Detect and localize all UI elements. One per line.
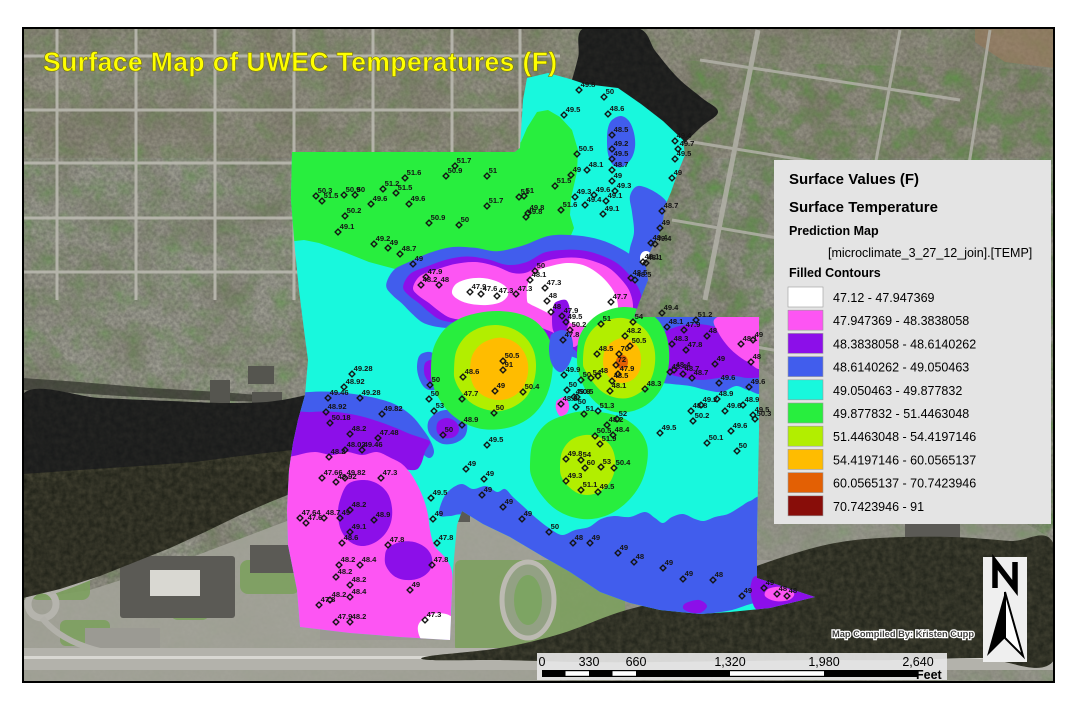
svg-text:49: 49: [497, 381, 505, 390]
svg-text:49.5: 49.5: [566, 105, 582, 114]
svg-text:49: 49: [620, 543, 628, 552]
svg-text:50.5: 50.5: [579, 144, 595, 153]
svg-text:50.5: 50.5: [579, 387, 595, 396]
svg-text:48.4: 48.4: [676, 360, 692, 369]
svg-text:48.2: 48.2: [352, 575, 367, 584]
svg-text:50: 50: [551, 522, 559, 531]
svg-text:60.0565137 - 70.7423946: 60.0565137 - 70.7423946: [833, 477, 976, 491]
svg-text:49: 49: [592, 533, 600, 542]
svg-text:Surface Temperature: Surface Temperature: [789, 199, 938, 216]
svg-text:660: 660: [626, 655, 647, 669]
svg-text:49: 49: [766, 578, 774, 587]
svg-text:48.1: 48.1: [645, 252, 661, 261]
svg-text:51: 51: [521, 187, 530, 196]
svg-text:50: 50: [606, 87, 614, 96]
svg-text:48.7: 48.7: [694, 368, 709, 377]
svg-text:48.3838058 - 48.6140262: 48.3838058 - 48.6140262: [833, 337, 976, 351]
svg-text:48.9: 48.9: [376, 510, 391, 519]
svg-text:48: 48: [600, 366, 608, 375]
svg-text:48.1: 48.1: [669, 317, 685, 326]
svg-text:48.8: 48.8: [693, 401, 708, 410]
svg-text:48.4: 48.4: [615, 425, 631, 434]
svg-text:49: 49: [685, 569, 693, 578]
svg-text:54: 54: [635, 312, 644, 321]
svg-text:48.5: 48.5: [599, 344, 615, 353]
svg-text:91: 91: [505, 360, 514, 369]
svg-text:72: 72: [618, 355, 626, 364]
svg-text:47.3: 47.3: [427, 610, 442, 619]
svg-text:48: 48: [636, 552, 644, 561]
svg-text:48.2: 48.2: [627, 326, 642, 335]
svg-text:330: 330: [579, 655, 600, 669]
svg-text:49: 49: [744, 586, 752, 595]
svg-text:49: 49: [573, 165, 581, 174]
svg-text:49: 49: [614, 171, 622, 180]
svg-text:48.9: 48.9: [745, 395, 760, 404]
svg-text:51.5: 51.5: [324, 191, 340, 200]
svg-text:49.3: 49.3: [617, 181, 632, 190]
svg-text:47.12 - 47.947369: 47.12 - 47.947369: [833, 291, 935, 305]
svg-text:49: 49: [486, 469, 494, 478]
svg-text:49.28: 49.28: [354, 364, 373, 373]
svg-text:48.7: 48.7: [664, 201, 679, 210]
svg-text:49.6: 49.6: [373, 194, 388, 203]
svg-text:70: 70: [621, 344, 629, 353]
svg-text:48: 48: [779, 584, 787, 593]
svg-text:49.6: 49.6: [721, 373, 736, 382]
svg-text:48.9: 48.9: [563, 394, 578, 403]
svg-text:49.877832 - 51.4463048: 49.877832 - 51.4463048: [833, 407, 969, 421]
svg-text:49.5: 49.5: [662, 423, 678, 432]
svg-text:47.8: 47.8: [390, 535, 405, 544]
svg-text:49.1: 49.1: [352, 522, 368, 531]
svg-text:[microclimate_3_27_12_join].[T: [microclimate_3_27_12_join].[TEMP]: [828, 246, 1032, 260]
svg-text:48: 48: [549, 291, 557, 300]
svg-text:53: 53: [436, 401, 444, 410]
svg-text:47.8: 47.8: [434, 555, 449, 564]
svg-text:48.6140262 - 49.050463: 48.6140262 - 49.050463: [833, 361, 969, 375]
svg-text:60: 60: [587, 458, 595, 467]
svg-text:49: 49: [435, 509, 443, 518]
svg-text:47.8: 47.8: [688, 340, 703, 349]
svg-text:50.4: 50.4: [616, 458, 632, 467]
svg-text:48.6: 48.6: [610, 104, 625, 113]
svg-text:48.2: 48.2: [331, 447, 346, 456]
svg-text:50: 50: [461, 215, 469, 224]
svg-text:48.2: 48.2: [352, 424, 367, 433]
svg-text:49: 49: [412, 580, 420, 589]
svg-text:48: 48: [709, 326, 717, 335]
svg-text:48.9: 48.9: [464, 415, 479, 424]
svg-text:49.050463 - 49.877832: 49.050463 - 49.877832: [833, 384, 962, 398]
svg-text:49: 49: [390, 238, 398, 247]
svg-text:51: 51: [489, 166, 498, 175]
svg-text:48.6: 48.6: [344, 533, 359, 542]
svg-text:50: 50: [357, 185, 365, 194]
svg-text:49.4: 49.4: [664, 303, 680, 312]
svg-text:48.92: 48.92: [338, 472, 357, 481]
svg-text:54.4197146 - 60.0565137: 54.4197146 - 60.0565137: [833, 453, 976, 467]
svg-text:48.2: 48.2: [338, 567, 353, 576]
svg-text:47.3: 47.3: [518, 284, 533, 293]
svg-text:50: 50: [537, 261, 545, 270]
svg-text:47.6: 47.6: [483, 284, 498, 293]
svg-text:49.5: 49.5: [755, 405, 771, 414]
svg-text:0: 0: [539, 655, 546, 669]
svg-text:48.92: 48.92: [346, 377, 365, 386]
svg-text:50: 50: [445, 425, 453, 434]
svg-text:49.5: 49.5: [489, 435, 505, 444]
svg-text:48: 48: [789, 586, 797, 595]
svg-text:47.3: 47.3: [499, 286, 514, 295]
svg-text:50.9: 50.9: [431, 213, 446, 222]
svg-text:49: 49: [468, 459, 476, 468]
svg-text:49.4: 49.4: [657, 234, 673, 243]
svg-text:48: 48: [441, 275, 449, 284]
svg-text:49.5: 49.5: [614, 149, 630, 158]
svg-text:49.2: 49.2: [614, 139, 629, 148]
svg-text:49.8: 49.8: [530, 203, 545, 212]
svg-text:48.1: 48.1: [612, 381, 628, 390]
svg-text:49.8: 49.8: [568, 449, 583, 458]
svg-text:48.2: 48.2: [423, 275, 438, 284]
svg-text:49.2: 49.2: [376, 234, 391, 243]
svg-text:Surface Values (F): Surface Values (F): [789, 171, 919, 188]
svg-text:50.4: 50.4: [525, 382, 541, 391]
svg-text:48.92: 48.92: [328, 402, 347, 411]
svg-text:51.7: 51.7: [457, 156, 472, 165]
svg-text:Filled Contours: Filled Contours: [789, 266, 881, 280]
svg-text:49: 49: [342, 508, 350, 517]
svg-text:47.8: 47.8: [565, 330, 580, 339]
svg-text:51.4463048 - 54.4197146: 51.4463048 - 54.4197146: [833, 430, 976, 444]
svg-text:47.8: 47.8: [439, 533, 454, 542]
svg-text:47.7: 47.7: [464, 389, 479, 398]
svg-text:49: 49: [484, 485, 492, 494]
svg-text:1,980: 1,980: [808, 655, 839, 669]
svg-text:48.3: 48.3: [674, 334, 689, 343]
svg-text:70.7423946 - 91: 70.7423946 - 91: [833, 500, 924, 514]
svg-text:51.1: 51.1: [583, 480, 599, 489]
svg-text:48.2: 48.2: [341, 555, 356, 564]
svg-text:49.8: 49.8: [581, 80, 596, 89]
svg-text:48.9: 48.9: [719, 389, 734, 398]
svg-text:51: 51: [603, 314, 612, 323]
svg-text:Feet: Feet: [916, 668, 943, 682]
svg-text:50.18: 50.18: [332, 413, 351, 422]
svg-text:48.1: 48.1: [743, 334, 759, 343]
svg-text:49: 49: [415, 254, 423, 263]
svg-text:50.5: 50.5: [505, 351, 521, 360]
svg-text:48.3: 48.3: [647, 379, 662, 388]
svg-text:1,320: 1,320: [714, 655, 745, 669]
svg-text:50.5: 50.5: [632, 336, 648, 345]
svg-text:Prediction Map: Prediction Map: [789, 224, 879, 238]
svg-text:49.5: 49.5: [433, 488, 449, 497]
svg-text:50.2: 50.2: [695, 411, 710, 420]
svg-text:47.947369 - 48.3838058: 47.947369 - 48.3838058: [833, 314, 969, 328]
svg-text:50: 50: [496, 403, 504, 412]
svg-text:50: 50: [583, 370, 591, 379]
svg-text:49: 49: [717, 354, 725, 363]
svg-text:49.5: 49.5: [677, 149, 693, 158]
svg-text:48.5: 48.5: [614, 125, 630, 134]
svg-text:47.64: 47.64: [302, 508, 322, 517]
svg-text:49.9: 49.9: [566, 365, 581, 374]
svg-text:49.6: 49.6: [751, 377, 766, 386]
svg-text:49.82: 49.82: [384, 404, 403, 413]
svg-text:49: 49: [524, 509, 532, 518]
svg-text:50: 50: [739, 441, 747, 450]
svg-text:49.46: 49.46: [330, 388, 349, 397]
svg-text:2,640: 2,640: [902, 655, 933, 669]
svg-text:49.1: 49.1: [608, 191, 624, 200]
svg-text:49.6: 49.6: [411, 194, 426, 203]
svg-text:48.7: 48.7: [326, 508, 341, 517]
svg-text:48: 48: [553, 302, 561, 311]
svg-text:51.6: 51.6: [563, 200, 578, 209]
svg-text:48: 48: [575, 533, 583, 542]
svg-text:51.7: 51.7: [489, 196, 504, 205]
svg-text:51.6: 51.6: [407, 168, 422, 177]
svg-text:Map Compiled By: Kristen Cupp: Map Compiled By: Kristen Cupp: [832, 629, 974, 639]
svg-text:49.6: 49.6: [733, 421, 748, 430]
svg-text:47.48: 47.48: [380, 428, 399, 437]
svg-text:49: 49: [665, 558, 673, 567]
svg-text:49: 49: [674, 168, 682, 177]
svg-text:50: 50: [432, 375, 440, 384]
svg-text:48.2: 48.2: [352, 500, 367, 509]
svg-text:51.9: 51.9: [602, 434, 617, 443]
svg-text:49: 49: [505, 497, 513, 506]
svg-text:49.1: 49.1: [605, 204, 621, 213]
svg-text:49.1: 49.1: [340, 222, 356, 231]
svg-text:50.2: 50.2: [347, 206, 362, 215]
svg-text:47.3: 47.3: [547, 278, 562, 287]
svg-text:48.1: 48.1: [589, 160, 605, 169]
svg-text:48.2: 48.2: [352, 612, 367, 621]
svg-text:48.5: 48.5: [637, 270, 653, 279]
svg-text:48: 48: [715, 570, 723, 579]
svg-text:48.4: 48.4: [362, 555, 378, 564]
svg-text:49.6: 49.6: [727, 401, 742, 410]
svg-text:49.46: 49.46: [364, 440, 383, 449]
svg-text:49.4: 49.4: [587, 195, 603, 204]
svg-text:49.5: 49.5: [600, 482, 616, 491]
svg-text:48.2: 48.2: [609, 415, 624, 424]
svg-text:48: 48: [753, 352, 761, 361]
svg-text:47.8: 47.8: [321, 595, 336, 604]
svg-text:49.28: 49.28: [362, 388, 381, 397]
svg-text:49.7: 49.7: [680, 139, 695, 148]
svg-text:51.5: 51.5: [557, 176, 573, 185]
svg-text:51.3: 51.3: [600, 401, 615, 410]
svg-text:48.6: 48.6: [465, 367, 480, 376]
svg-text:50.2: 50.2: [572, 320, 587, 329]
svg-text:50.1: 50.1: [709, 433, 725, 442]
svg-text:48.4: 48.4: [352, 587, 368, 596]
svg-text:47.9: 47.9: [686, 320, 701, 329]
svg-text:Surface Map of UWEC Temperatur: Surface Map of UWEC Temperatures (F): [43, 47, 558, 77]
svg-text:49: 49: [662, 218, 670, 227]
svg-text:48.5: 48.5: [614, 371, 630, 380]
svg-text:51: 51: [586, 404, 595, 413]
svg-text:51.2: 51.2: [698, 310, 713, 319]
svg-text:51.5: 51.5: [398, 183, 414, 192]
svg-text:53: 53: [603, 457, 611, 466]
svg-text:48.7: 48.7: [402, 244, 417, 253]
svg-text:49.3: 49.3: [568, 471, 583, 480]
svg-text:47.3: 47.3: [383, 468, 398, 477]
svg-text:48.7: 48.7: [614, 160, 629, 169]
svg-text:50.9: 50.9: [448, 166, 463, 175]
svg-text:47.7: 47.7: [613, 292, 628, 301]
svg-text:48.1: 48.1: [532, 270, 548, 279]
svg-text:50: 50: [431, 389, 439, 398]
